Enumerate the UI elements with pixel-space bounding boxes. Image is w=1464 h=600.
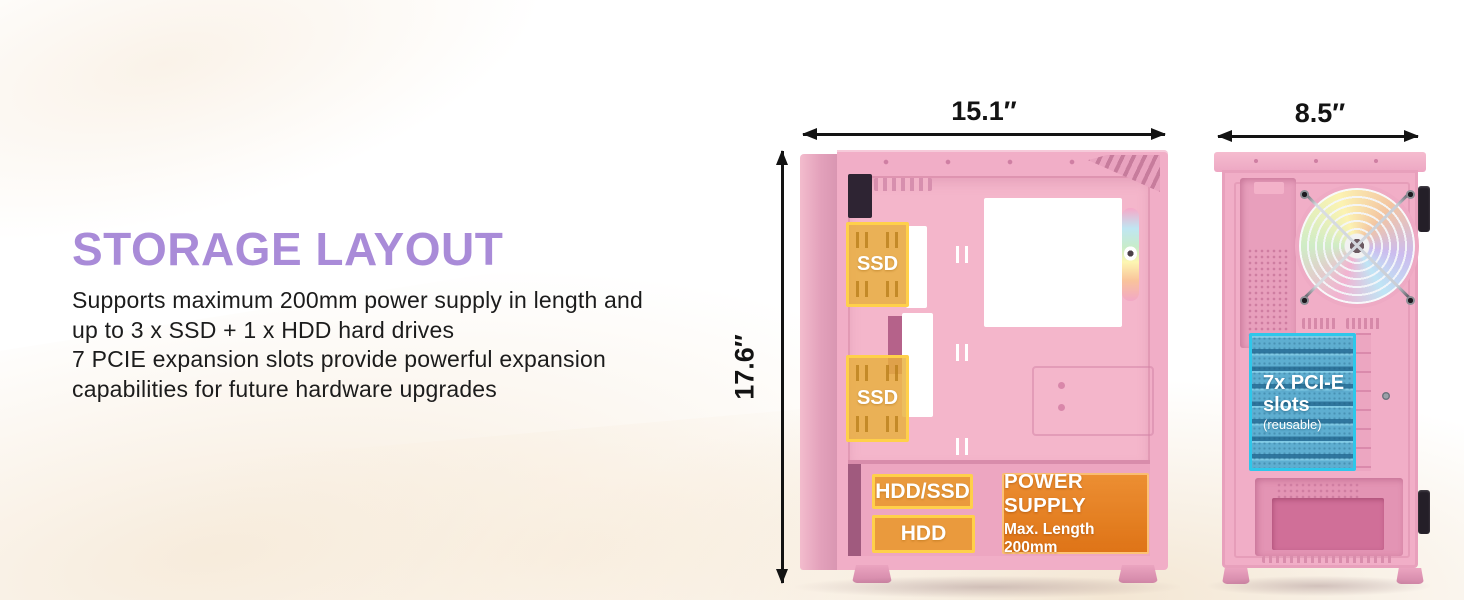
drive-mount-slot [856,281,868,297]
side-panel-latch [1418,490,1430,534]
page-title: STORAGE LAYOUT [72,226,712,272]
main-case-side-view: SSD SSD HDD/SSD HDD POWER SUPPLY Max. Le… [800,150,1168,590]
height-dimension-arrow [781,151,784,583]
drive-mount-slot [856,232,868,248]
hdd-ssd-bay-highlight: HDD/SSD [872,474,973,509]
panel-screw-hole [1058,382,1065,389]
vent-slot [1302,318,1336,329]
ssd-top-label: SSD [857,253,898,276]
fan-screw [1300,190,1309,199]
standoff-slot [956,246,968,263]
rear-io-block [848,174,872,218]
top-lip-screws [1226,158,1414,164]
psu-bracket [1272,498,1384,550]
fan-screw [1406,296,1415,305]
standoff-slot [956,344,968,361]
drive-mount-slot [856,365,868,381]
drive-mount-slot [886,416,898,432]
psu-shroud-panel [1032,366,1154,436]
panel-screw-hole [1058,404,1065,411]
depth-dimension-arrow [1218,135,1418,138]
fan-screw [1300,296,1309,305]
drive-mount-slot [886,365,898,381]
case-shadow [1208,576,1430,596]
ssd-bottom-label: SSD [857,387,898,410]
drive-mount-slot [886,281,898,297]
pcie-slots-highlight: 7x PCI-E slots (reusable) [1249,333,1356,471]
power-supply-area-highlight: POWER SUPPLY Max. Length 200mm [1002,473,1149,554]
height-dimension-label: 17.6″ [730,305,772,430]
pcie-label: 7x PCI-E slots (reusable) [1263,372,1344,432]
hdd-bay-highlight: HDD [872,515,975,553]
width-dimension-label: 15.1″ [800,96,1168,127]
io-vent-fins [874,178,932,191]
psu-max-length-note: Max. Length 200mm [1004,521,1147,557]
fan-screw [1406,190,1415,199]
io-vent-mesh [1247,248,1290,340]
ssd-slot-top-highlight: SSD [846,222,909,307]
description: Supports maximum 200mm power supply in l… [72,286,712,404]
pcie-label-line1: 7x PCI-E [1263,372,1344,394]
front-panel [800,154,837,570]
width-dimension-arrow [803,133,1165,136]
rear-case-view: 7x PCI-E slots (reusable) [1214,152,1426,592]
side-panel-latch [1418,186,1430,232]
rgb-fan-hub [1124,246,1137,261]
pcie-label-line2: slots [1263,394,1344,416]
psu-label: POWER SUPPLY [1004,470,1147,518]
drive-mount-slot [856,416,868,432]
hdd-label: HDD [901,522,947,546]
storage-layout-infographic: STORAGE LAYOUT Supports maximum 200mm po… [0,0,1464,600]
depth-dimension-label: 8.5″ [1214,98,1426,129]
drive-mount-slot [886,232,898,248]
description-line: 7 PCIE expansion slots provide powerful … [72,345,712,375]
case-shadow [795,576,1180,598]
hdd-ssd-label: HDD/SSD [875,480,970,504]
ssd-slot-bottom-highlight: SSD [846,355,909,442]
panel-screw [1382,392,1390,400]
io-latch-tab [1254,182,1284,194]
bottom-rail [1262,556,1394,563]
standoff-slot [956,438,968,455]
motherboard-window-cutout [984,198,1122,327]
intro-block: STORAGE LAYOUT Supports maximum 200mm po… [72,226,712,404]
thumbscrew-strip [1356,333,1371,471]
vent-slot [1346,318,1380,329]
description-line: Supports maximum 200mm power supply in l… [72,286,712,316]
cable-cutout [906,226,927,308]
pcie-label-line3: (reusable) [1263,417,1344,433]
description-line: capabilities for future hardware upgrade… [72,375,712,405]
description-line: up to 3 x SSD + 1 x HDD hard drives [72,316,712,346]
